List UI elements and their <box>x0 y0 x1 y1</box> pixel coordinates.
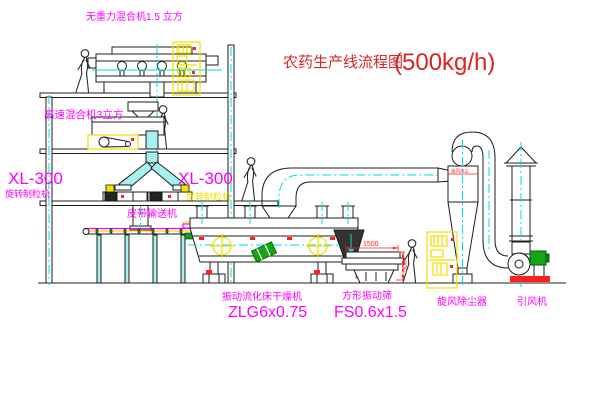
gravity-free-mixer-label: 无重力混合机1.5 立方 <box>86 10 183 23</box>
cyclone-dust-collector: 旋风除尘 <box>438 132 508 288</box>
worker-figure-top-floor <box>76 50 90 92</box>
screen-model-label: FS0.6x1.5 <box>334 304 407 321</box>
screen-name-label: 方形振动筛 <box>342 289 392 302</box>
dim-500-label: 500 <box>402 260 409 272</box>
granulator-right-model-label: XL-300 <box>178 169 233 188</box>
cad-drawing-canvas: 旋风除尘 <box>0 0 600 403</box>
granulator-left-name-label: 旋转制粒机 <box>5 188 50 199</box>
mixer-outlet-chute <box>146 131 158 149</box>
dryer-model-label: ZLG6x0.75 <box>228 304 307 321</box>
belt-conveyor <box>83 222 197 283</box>
drawing-title: 农药生产线流程图 (500kg/h) <box>283 49 495 76</box>
cyclone-label: 旋风除尘器 <box>437 295 487 308</box>
cyclone-body-tag: 旋风除尘 <box>451 168 469 175</box>
title-text: 农药生产线流程图 <box>283 54 403 71</box>
worker-figure-third-floor <box>242 158 256 200</box>
fan-base <box>510 276 550 282</box>
dim-1500-label: 1500 <box>363 241 379 248</box>
title-capacity: (500kg/h) <box>394 49 495 76</box>
duct-centerline <box>279 175 456 208</box>
induced-draft-fan <box>508 242 550 282</box>
dryer-name-label: 振动流化床干燥机 <box>222 290 302 303</box>
dryer-pedestal-right <box>311 262 333 283</box>
granulator-left-model-label: XL-300 <box>8 169 63 188</box>
belt-conveyor-label: 皮带输送机 <box>127 207 177 220</box>
dryer-pedestal-left <box>203 262 225 283</box>
granulator-right-name-label: 旋转制粒机 <box>186 191 231 202</box>
fan-label: 引风机 <box>517 295 547 308</box>
exhaust-duct <box>262 168 456 218</box>
high-speed-mixer-label: 高速混合机3立方 <box>44 108 123 121</box>
fan-motor <box>530 251 546 265</box>
process-flow-diagram: 旋风除尘 <box>0 0 600 403</box>
